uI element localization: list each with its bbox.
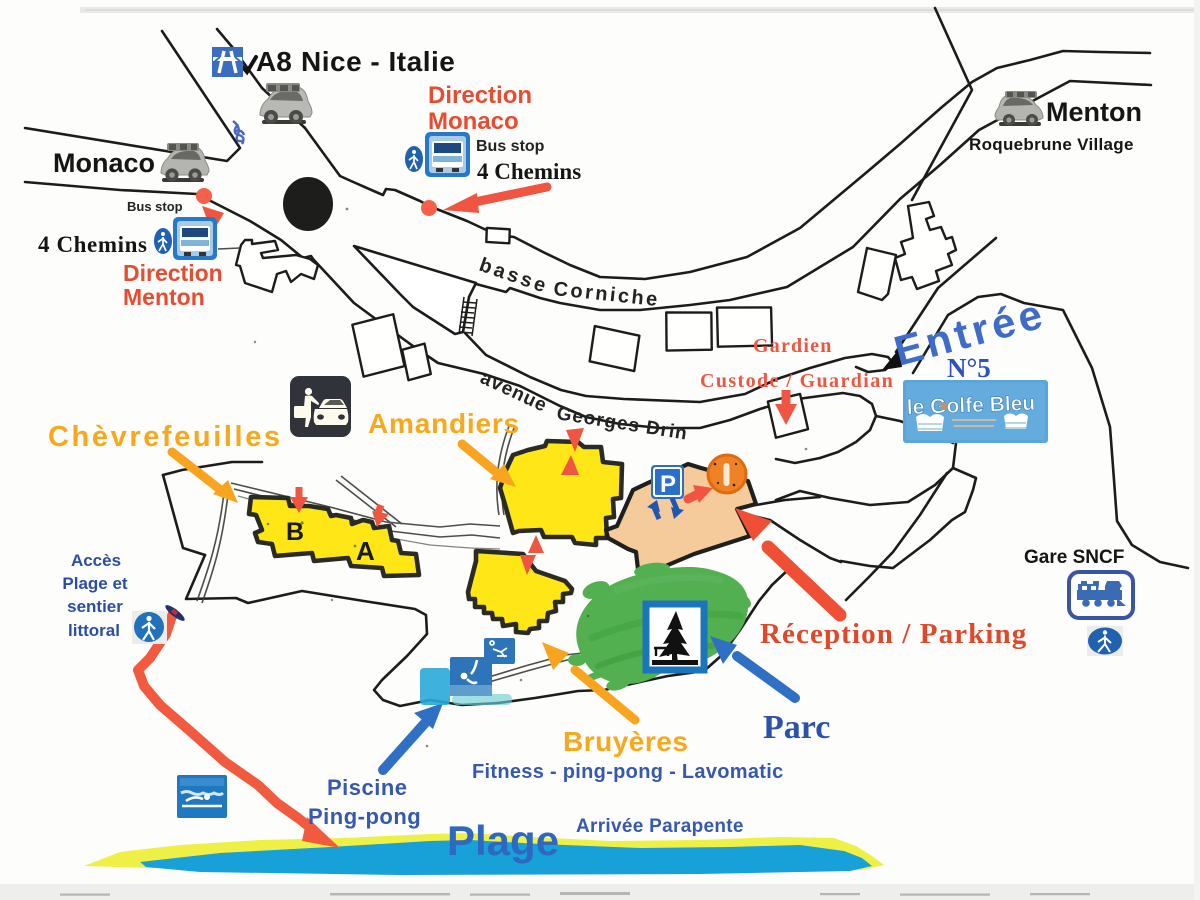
svg-text:Ping-pong: Ping-pong [308,804,421,829]
svg-text:Menton: Menton [123,284,205,310]
svg-text:Parc: Parc [763,709,830,746]
svg-text:Custode / Guardian: Custode / Guardian [700,370,894,392]
svg-text:Menton: Menton [1046,97,1142,127]
svg-text:Gardien: Gardien [753,335,833,357]
svg-text:Plage et: Plage et [62,574,128,593]
svg-text:Réception / Parking: Réception / Parking [760,618,1027,650]
svg-text:Chèvrefeuilles: Chèvrefeuilles [48,421,283,453]
svg-text:N°5: N°5 [947,353,991,383]
svg-text:Monaco: Monaco [53,148,155,178]
svg-text:4 Chemins: 4 Chemins [38,232,148,257]
svg-text:Direction: Direction [428,82,532,109]
svg-text:Nice - Italie: Nice - Italie [301,46,455,77]
svg-text:Direction: Direction [123,260,223,286]
svg-text:Bruyères: Bruyères [563,726,688,757]
svg-text:Monaco: Monaco [428,108,519,135]
svg-text:Bus stop: Bus stop [476,138,545,155]
svg-text:A: A [356,536,375,566]
svg-text:Plage: Plage [447,817,559,864]
svg-text:Fitness - ping-pong - Lavomati: Fitness - ping-pong - Lavomatic [472,761,784,783]
svg-text:Piscine: Piscine [327,775,408,800]
svg-text:P: P [660,471,676,498]
svg-text:Bus stop: Bus stop [127,199,183,214]
svg-text:4 Chemins: 4 Chemins [477,159,581,184]
svg-text:A8: A8 [256,46,292,77]
svg-text:Arrivée Parapente: Arrivée Parapente [576,816,744,837]
svg-text:littoral: littoral [68,621,120,640]
svg-text:sentier: sentier [67,597,123,616]
svg-text:Gare SNCF: Gare SNCF [1024,547,1124,568]
svg-text:Amandiers: Amandiers [368,408,520,439]
svg-text:Accès: Accès [71,551,121,570]
svg-text:Roquebrune Village: Roquebrune Village [969,135,1134,154]
